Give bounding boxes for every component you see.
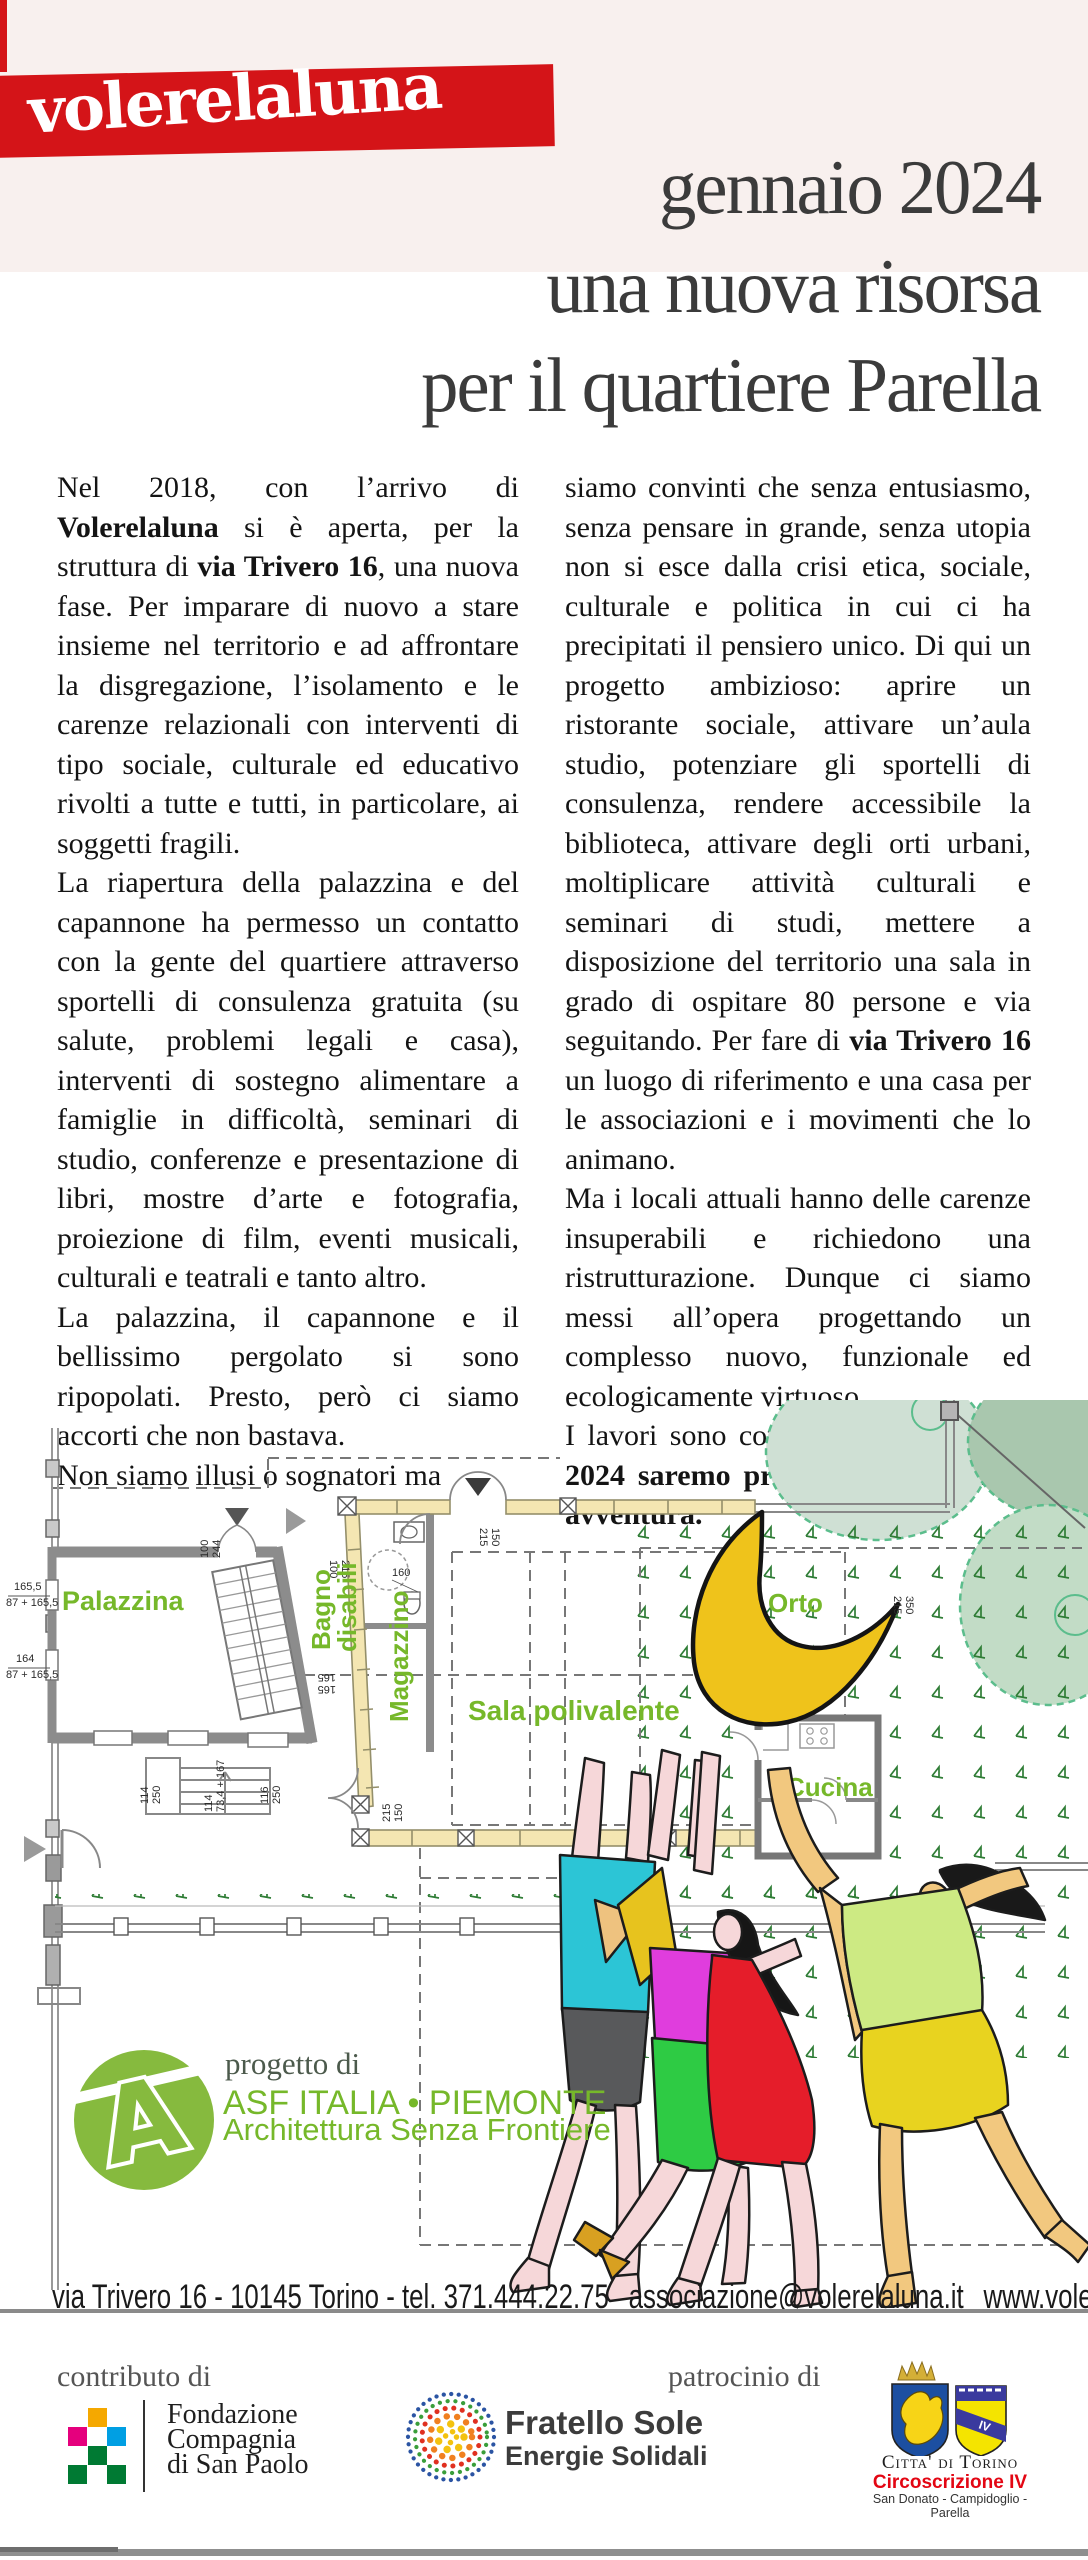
label-palazzina: Palazzina: [62, 1586, 185, 1616]
citta-torino-crest: IV: [880, 2356, 1020, 2456]
svg-text:250: 250: [151, 1786, 163, 1804]
fratello-sole-logo: [404, 2390, 498, 2484]
svg-text:114: 114: [139, 1786, 151, 1804]
article-column-left: Nel 2018, con l’arrivo di Volerelaluna s…: [57, 468, 519, 1495]
fondazione-name: FondazioneCompagniadi San Paolo: [167, 2402, 309, 2477]
label-magazzino: Magazzino: [384, 1591, 414, 1722]
bottom-bar: [0, 2549, 1088, 2556]
label-orto: Orto: [768, 1588, 823, 1618]
label-cucina: Cucina: [786, 1772, 873, 1802]
svg-text:160: 160: [392, 1567, 410, 1579]
svg-text:150: 150: [489, 1528, 501, 1546]
fratello-sole-subtitle: Energie Solidali: [505, 2441, 708, 2472]
svg-text:165: 165: [318, 1671, 336, 1683]
svg-text:215: 215: [477, 1528, 489, 1546]
svg-text:87 + 165,5: 87 + 165,5: [6, 1597, 58, 1609]
label-sala-polivalente: Sala polivalente: [468, 1695, 680, 1726]
svg-text:215: 215: [381, 1804, 393, 1822]
article-column-right: siamo convinti che senza entusiasmo, sen…: [565, 468, 1031, 1535]
title-date: gennaio 2024: [421, 138, 1040, 237]
label-bagno-line2: disabili: [332, 1562, 362, 1652]
red-corner-stripe: [0, 0, 7, 72]
poster-page: volerelaluna gennaio 2024 una nuova riso…: [0, 0, 1088, 2560]
svg-text:116: 116: [259, 1786, 271, 1804]
contributo-di-label: contributo di: [57, 2360, 211, 2394]
svg-text:73,4 + 167: 73,4 + 167: [215, 1760, 227, 1812]
divider-rule: [0, 2309, 1088, 2313]
circoscrizione-label: Circoscrizione IV: [860, 2472, 1040, 2494]
progetto-di-label: progetto di: [225, 2046, 360, 2082]
asf-logo: A: [68, 2044, 220, 2196]
svg-text:100: 100: [199, 1540, 211, 1558]
svg-text:114: 114: [203, 1794, 215, 1812]
svg-text:164: 164: [16, 1653, 34, 1665]
svg-text:250: 250: [271, 1786, 283, 1804]
svg-text:244: 244: [211, 1540, 223, 1558]
patrocinio-di-label: patrocinio di: [668, 2360, 820, 2394]
circoscrizione-zones: San Donato - Campidoglio - Parella: [860, 2492, 1040, 2520]
svg-text:165,5: 165,5: [14, 1581, 42, 1593]
asf-subtitle: Architettura Senza Frontiere: [223, 2112, 611, 2148]
svg-text:87 + 165,5: 87 + 165,5: [6, 1669, 58, 1681]
fratello-sole-name: Fratello Sole: [505, 2404, 703, 2442]
svg-text:150: 150: [393, 1804, 405, 1822]
palazzina-building: [46, 1508, 312, 1814]
page-title: gennaio 2024 una nuova risorsa per il qu…: [421, 138, 1040, 435]
compagnia-san-paolo-logo: [60, 2400, 160, 2495]
title-line-2: una nuova risorsa: [421, 237, 1040, 336]
svg-text:215: 215: [891, 1596, 903, 1614]
bottom-bar-accent: [0, 2547, 118, 2552]
title-line-3: per il quartiere Parella: [421, 336, 1040, 435]
citta-torino-label: Citta' di Torino: [874, 2452, 1026, 2474]
svg-text:165: 165: [318, 1683, 336, 1695]
svg-text:350: 350: [903, 1596, 915, 1614]
